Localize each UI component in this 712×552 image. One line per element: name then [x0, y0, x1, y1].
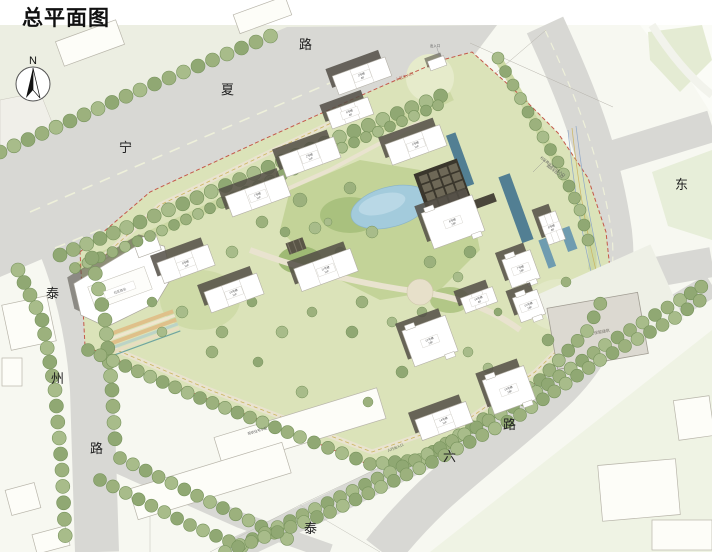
street-tree — [162, 203, 176, 217]
park-tree — [280, 227, 290, 237]
street-tree — [55, 463, 69, 477]
street-tree — [361, 132, 372, 143]
street-tree — [29, 301, 43, 315]
park-tree — [346, 326, 358, 338]
street-tree — [205, 203, 216, 214]
street-tree — [144, 370, 157, 383]
page-title: 总平面图 — [22, 2, 110, 32]
street-tree — [132, 236, 143, 247]
street-tree — [58, 529, 72, 543]
street-tree — [271, 526, 284, 539]
street-tree — [158, 506, 171, 519]
street-tree — [264, 29, 278, 43]
street-tree — [587, 311, 600, 324]
street-tree — [476, 429, 489, 442]
street-tree — [139, 464, 152, 477]
street-tree — [197, 524, 210, 537]
street-tree — [92, 282, 106, 296]
street-tree — [216, 502, 229, 515]
street-tree — [606, 347, 619, 360]
street-tree — [120, 241, 131, 252]
street-tree — [98, 313, 112, 327]
street-tree — [35, 313, 49, 327]
park-tree — [216, 326, 228, 338]
park-tree — [276, 326, 288, 338]
street-tree — [206, 53, 220, 67]
label-ningxia-1: 宁 — [119, 140, 132, 155]
street-tree — [108, 432, 122, 446]
street-tree — [157, 225, 168, 236]
street-tree — [349, 493, 362, 506]
street-tree — [204, 496, 217, 509]
street-tree — [145, 499, 158, 512]
park-tree — [344, 182, 356, 194]
label-east-road: 东 — [675, 177, 688, 192]
label-taizhou-3: 路 — [90, 441, 103, 456]
label-southwest: 泰 — [304, 521, 317, 536]
street-tree — [515, 93, 527, 105]
park-tree — [296, 386, 308, 398]
park-tree — [324, 218, 332, 226]
street-tree — [171, 512, 184, 525]
street-tree — [169, 381, 182, 394]
street-tree — [38, 327, 52, 341]
park-tree — [464, 246, 476, 258]
street-tree — [120, 221, 134, 235]
street-tree — [178, 483, 191, 496]
park-tree — [309, 222, 321, 234]
label-south-2: 路 — [503, 417, 516, 432]
street-tree — [107, 416, 121, 430]
park-tree — [494, 308, 502, 316]
label-taizhou-1: 泰 — [46, 286, 59, 301]
street-tree — [99, 327, 113, 341]
street-tree — [336, 447, 349, 460]
street-tree — [322, 441, 335, 454]
master-plan-page: 总平面图 — [0, 0, 712, 552]
street-tree — [49, 399, 63, 413]
street-tree — [582, 361, 595, 374]
park-tree — [542, 334, 554, 346]
street-tree — [242, 514, 255, 527]
label-south-1: 六 — [443, 449, 456, 464]
street-tree — [349, 137, 360, 148]
street-tree — [52, 431, 66, 445]
street-tree — [281, 426, 294, 439]
street-tree — [35, 126, 49, 140]
street-tree — [400, 468, 413, 481]
street-tree — [131, 365, 144, 378]
street-tree — [232, 541, 245, 552]
street-tree — [235, 41, 249, 55]
street-tree — [133, 83, 147, 97]
street-tree — [574, 204, 586, 216]
street-tree — [193, 208, 204, 219]
street-tree — [563, 180, 575, 192]
street-tree — [308, 436, 321, 449]
street-tree — [191, 59, 205, 73]
street-tree — [220, 47, 234, 61]
street-tree — [132, 493, 145, 506]
street-tree — [77, 108, 91, 122]
street-tree — [385, 121, 396, 132]
street-tree — [210, 529, 223, 542]
street-tree — [54, 447, 68, 461]
street-tree — [147, 209, 161, 223]
street-tree — [669, 312, 682, 325]
anno-top-entrance: 出入口 — [430, 43, 440, 48]
label-ningxia-2: 夏 — [221, 82, 234, 97]
park-tree — [226, 246, 238, 258]
street-tree — [362, 487, 375, 500]
street-tree — [106, 480, 119, 493]
street-tree — [656, 319, 669, 332]
street-tree — [594, 297, 607, 310]
street-tree — [269, 421, 282, 434]
park-tree — [356, 296, 368, 308]
street-tree — [184, 519, 197, 532]
park-tree — [387, 317, 397, 327]
street-tree — [51, 415, 65, 429]
street-tree — [336, 499, 349, 512]
street-tree — [581, 325, 594, 338]
street-tree — [169, 219, 180, 230]
label-ningxia-3: 路 — [299, 37, 312, 52]
street-tree — [105, 383, 119, 397]
street-tree — [95, 298, 109, 312]
street-tree — [93, 232, 107, 246]
north-label: N — [29, 55, 37, 67]
street-tree — [695, 280, 708, 293]
street-tree — [105, 95, 119, 109]
street-tree — [114, 452, 127, 465]
street-tree — [106, 354, 119, 367]
street-tree — [63, 114, 77, 128]
street-tree — [347, 124, 361, 138]
street-tree — [176, 197, 190, 211]
street-tree — [219, 401, 232, 414]
street-tree — [82, 344, 95, 357]
park-tree — [147, 297, 157, 307]
park-tree — [561, 277, 571, 287]
street-tree — [57, 512, 71, 526]
site-plan-drawing: 现状保留建筑 1号楼11F2号楼11F3号楼8F4号楼8F5号楼11F6号楼18… — [0, 0, 712, 552]
street-tree — [156, 376, 169, 389]
street-tree — [284, 521, 297, 534]
street-tree — [387, 474, 400, 487]
street-tree — [80, 237, 94, 251]
street-tree — [152, 470, 165, 483]
street-tree — [488, 422, 501, 435]
street-tree — [693, 294, 706, 307]
street-tree — [537, 131, 549, 143]
park-tree — [396, 366, 408, 378]
label-taizhou-2: 州 — [51, 371, 64, 386]
street-tree — [107, 247, 118, 258]
street-tree — [17, 276, 31, 290]
street-tree — [245, 536, 258, 549]
street-tree — [552, 354, 565, 367]
street-tree — [106, 226, 120, 240]
park-tree — [453, 272, 463, 282]
street-tree — [85, 251, 99, 265]
park-tree — [157, 327, 167, 337]
street-tree — [162, 71, 176, 85]
street-tree — [66, 243, 80, 257]
street-tree — [191, 489, 204, 502]
street-tree — [500, 66, 512, 78]
street-tree — [40, 341, 54, 355]
street-tree — [181, 214, 192, 225]
street-tree — [194, 392, 207, 405]
street-tree — [106, 399, 120, 413]
street-tree — [23, 288, 37, 302]
street-tree — [594, 354, 607, 367]
street-tree — [571, 334, 584, 347]
street-tree — [631, 333, 644, 346]
street-tree — [126, 458, 139, 471]
park-tree — [424, 256, 436, 268]
street-tree — [229, 508, 242, 521]
street-tree — [375, 481, 388, 494]
park-tree — [307, 307, 317, 317]
street-tree — [231, 406, 244, 419]
street-tree — [433, 100, 444, 111]
street-tree — [258, 531, 271, 544]
street-tree — [148, 77, 162, 91]
street-tree — [413, 462, 426, 475]
street-tree — [545, 144, 557, 156]
park-tree — [293, 193, 307, 207]
street-tree — [559, 377, 572, 390]
street-tree — [530, 119, 542, 131]
street-tree — [177, 65, 191, 79]
street-tree — [409, 110, 420, 121]
street-tree — [397, 116, 408, 127]
street-tree — [7, 139, 21, 153]
street-tree — [165, 477, 178, 490]
street-tree — [619, 340, 632, 353]
street-tree — [57, 496, 71, 510]
street-tree — [578, 219, 590, 231]
street-tree — [244, 411, 257, 424]
street-tree — [133, 215, 147, 229]
park-tree — [176, 306, 188, 318]
street-tree — [562, 344, 575, 357]
street-tree — [324, 506, 337, 519]
street-tree — [94, 474, 107, 487]
street-tree — [364, 458, 377, 471]
street-tree — [373, 126, 384, 137]
street-tree — [206, 396, 219, 409]
park-tree — [363, 397, 373, 407]
park-tree — [253, 357, 263, 367]
street-tree — [56, 479, 70, 493]
street-tree — [88, 267, 102, 281]
street-tree — [463, 435, 476, 448]
street-tree — [681, 303, 694, 316]
street-tree — [91, 102, 105, 116]
street-tree — [49, 120, 63, 134]
street-tree — [522, 106, 534, 118]
street-tree — [119, 486, 132, 499]
street-tree — [249, 35, 263, 49]
park-tree — [463, 347, 473, 357]
street-tree — [492, 52, 504, 64]
street-tree — [569, 192, 581, 204]
street-tree — [190, 191, 204, 205]
street-tree — [21, 133, 35, 147]
street-tree — [350, 452, 363, 465]
park-tree — [366, 226, 378, 238]
street-tree — [119, 360, 132, 373]
street-tree — [204, 185, 218, 199]
street-tree — [582, 234, 594, 246]
street-tree — [507, 79, 519, 91]
street-tree — [571, 369, 584, 382]
street-tree — [11, 263, 25, 277]
street-tree — [421, 105, 432, 116]
park-tree — [206, 346, 218, 358]
street-tree — [145, 231, 156, 242]
street-tree — [294, 431, 307, 444]
street-tree — [536, 393, 549, 406]
park-tree — [256, 216, 268, 228]
street-tree — [548, 385, 561, 398]
street-tree — [70, 263, 81, 274]
street-tree — [119, 89, 133, 103]
street-tree — [94, 349, 107, 362]
street-tree — [43, 355, 57, 369]
street-tree — [53, 248, 67, 262]
street-tree — [104, 369, 118, 383]
street-tree — [426, 456, 439, 469]
street-tree — [181, 386, 194, 399]
street-tree — [644, 326, 657, 339]
